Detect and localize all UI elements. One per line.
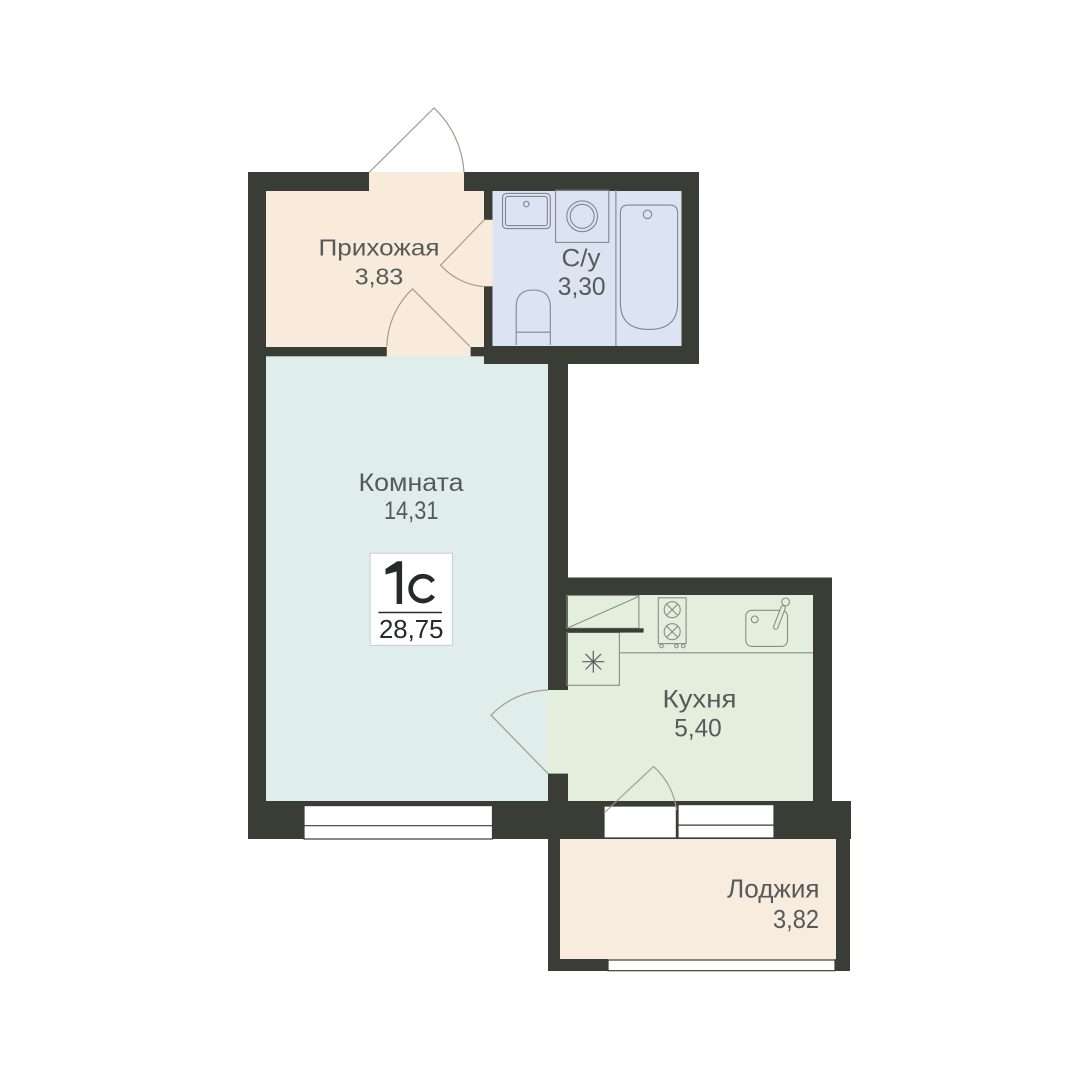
svg-text:5,40: 5,40 [674, 715, 721, 743]
svg-text:Прихожая: Прихожая [319, 235, 440, 261]
svg-text:3,30: 3,30 [558, 273, 606, 301]
svg-text:3,82: 3,82 [773, 904, 819, 934]
svg-text:14,31: 14,31 [384, 497, 439, 525]
svg-text:Кухня: Кухня [663, 686, 737, 714]
svg-text:С/у: С/у [562, 245, 602, 273]
svg-text:3,83: 3,83 [355, 263, 404, 289]
svg-text:28,75: 28,75 [379, 614, 444, 644]
svg-text:Комната: Комната [359, 469, 464, 497]
svg-text:Лоджия: Лоджия [727, 873, 819, 903]
